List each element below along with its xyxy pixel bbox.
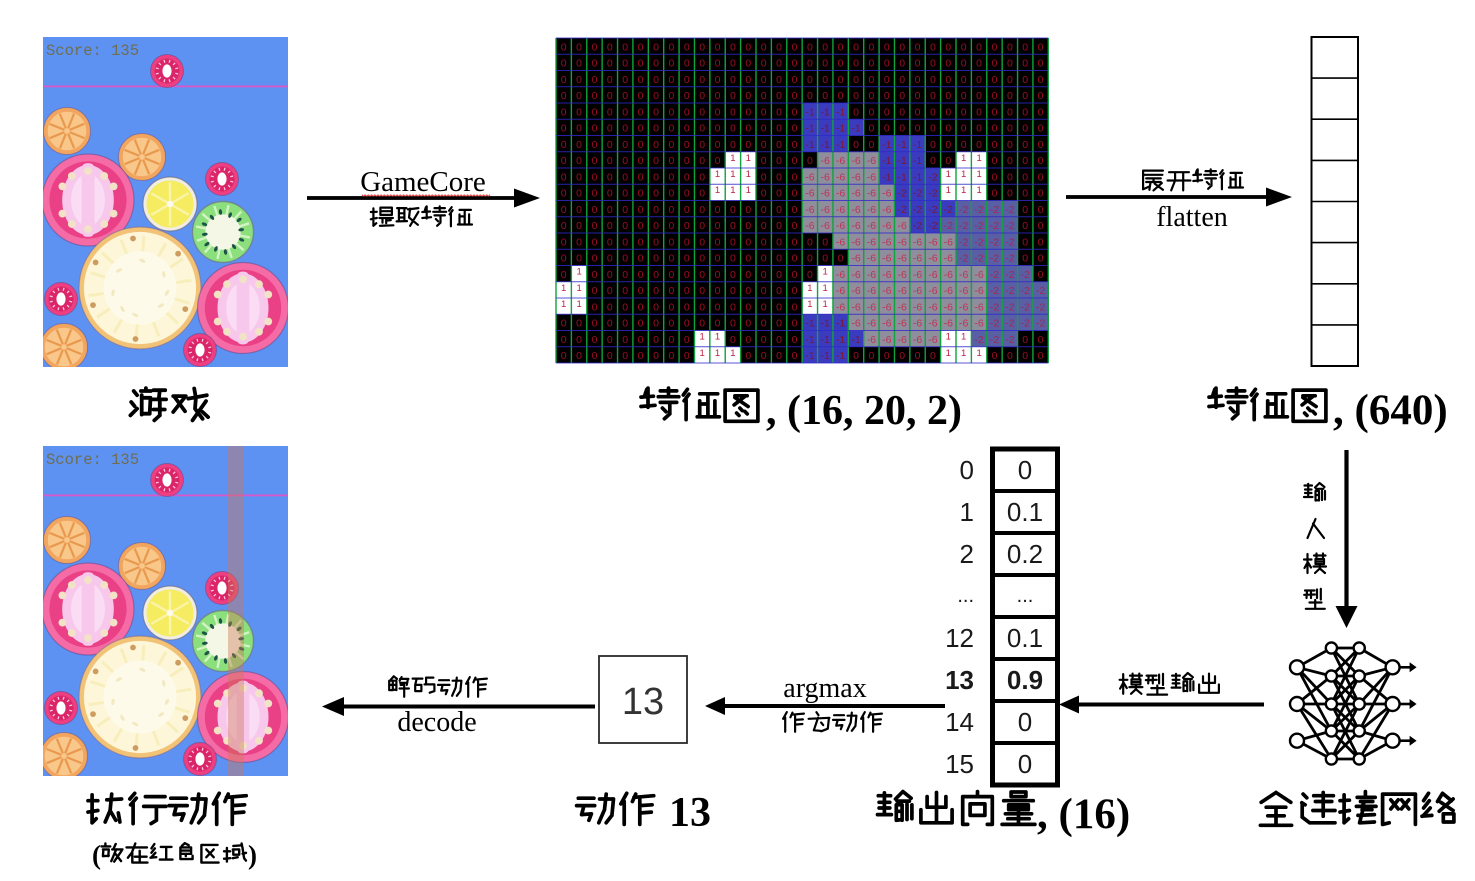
svg-text:0: 0: [653, 41, 659, 53]
svg-text:-6: -6: [882, 269, 891, 281]
svg-text:-6: -6: [898, 301, 907, 313]
svg-text:0: 0: [1022, 139, 1028, 151]
svg-text:0: 0: [653, 220, 659, 232]
svg-text:0: 0: [622, 41, 628, 53]
svg-text:0: 0: [638, 188, 644, 200]
svg-text:-1: -1: [821, 106, 830, 118]
svg-text:0: 0: [622, 350, 628, 362]
svg-text:0: 0: [1007, 350, 1013, 362]
svg-text:0: 0: [592, 253, 598, 265]
svg-text:-6: -6: [805, 188, 814, 200]
svg-text:0: 0: [792, 334, 798, 346]
svg-text:0: 0: [715, 204, 721, 216]
svg-text:0: 0: [976, 90, 982, 102]
svg-text:0: 0: [992, 106, 998, 118]
svg-text:1: 1: [823, 283, 828, 294]
svg-text:0: 0: [668, 253, 674, 265]
svg-text:0: 0: [622, 301, 628, 313]
svg-text:0: 0: [761, 139, 767, 151]
svg-text:0: 0: [653, 318, 659, 330]
svg-text:0: 0: [638, 220, 644, 232]
svg-text:flatten: flatten: [1156, 202, 1228, 233]
svg-text:0: 0: [715, 74, 721, 86]
svg-text:0: 0: [622, 106, 628, 118]
svg-text:0: 0: [776, 41, 782, 53]
svg-text:-6: -6: [867, 334, 876, 346]
svg-text:0: 0: [761, 318, 767, 330]
svg-text:-2: -2: [974, 236, 983, 248]
svg-text:-6: -6: [974, 269, 983, 281]
svg-text:-6: -6: [928, 301, 937, 313]
svg-text:0: 0: [761, 220, 767, 232]
svg-text:2: 2: [960, 539, 974, 569]
svg-text:-1: -1: [882, 139, 891, 151]
svg-text:0: 0: [668, 188, 674, 200]
svg-text:-2: -2: [1005, 204, 1014, 216]
svg-text:0: 0: [607, 318, 613, 330]
svg-text:0: 0: [745, 90, 751, 102]
svg-text:0: 0: [699, 106, 705, 118]
svg-text:0: 0: [730, 123, 736, 135]
svg-text:0: 0: [592, 334, 598, 346]
svg-text:-6: -6: [882, 301, 891, 313]
svg-text:0: 0: [1038, 334, 1044, 346]
svg-text:-2: -2: [959, 253, 968, 265]
svg-text:-6: -6: [821, 171, 830, 183]
svg-text:0: 0: [684, 90, 690, 102]
svg-text:0: 0: [561, 269, 567, 281]
svg-text:1: 1: [576, 267, 581, 278]
svg-text:-6: -6: [867, 253, 876, 265]
svg-text:1: 1: [561, 299, 566, 310]
svg-text:0: 0: [668, 90, 674, 102]
svg-text:0: 0: [576, 106, 582, 118]
svg-text:0: 0: [592, 285, 598, 297]
svg-text:0: 0: [715, 139, 721, 151]
svg-text:-2: -2: [1005, 318, 1014, 330]
svg-text:0: 0: [745, 74, 751, 86]
svg-text:-6: -6: [944, 301, 953, 313]
svg-text:0: 0: [576, 236, 582, 248]
svg-text:0: 0: [715, 41, 721, 53]
svg-text:0: 0: [945, 41, 951, 53]
svg-text:0: 0: [945, 123, 951, 135]
svg-text:0: 0: [915, 41, 921, 53]
svg-text:0: 0: [638, 318, 644, 330]
svg-text:-6: -6: [851, 285, 860, 297]
svg-text:-2: -2: [1021, 301, 1030, 313]
svg-text:0: 0: [807, 74, 813, 86]
svg-text:0: 0: [1038, 106, 1044, 118]
svg-text:-1: -1: [836, 334, 845, 346]
svg-text:0: 0: [638, 204, 644, 216]
svg-text:0: 0: [668, 139, 674, 151]
svg-text:0: 0: [607, 334, 613, 346]
svg-text:0: 0: [576, 74, 582, 86]
svg-text:0: 0: [668, 123, 674, 135]
svg-text:0: 0: [1007, 139, 1013, 151]
svg-text:0: 0: [622, 318, 628, 330]
svg-text:0: 0: [638, 90, 644, 102]
svg-text:0: 0: [1038, 41, 1044, 53]
svg-text:0: 0: [961, 106, 967, 118]
svg-text:0: 0: [976, 74, 982, 86]
svg-text:0: 0: [1007, 188, 1013, 200]
svg-text:0: 0: [699, 220, 705, 232]
svg-text:-6: -6: [882, 220, 891, 232]
svg-text:-1: -1: [821, 318, 830, 330]
svg-text:0: 0: [930, 58, 936, 70]
svg-text:0: 0: [745, 106, 751, 118]
svg-text:-1: -1: [898, 155, 907, 167]
svg-text:0: 0: [592, 350, 598, 362]
svg-text:0: 0: [730, 204, 736, 216]
svg-text:0: 0: [745, 123, 751, 135]
svg-text:0: 0: [776, 188, 782, 200]
svg-text:0: 0: [792, 171, 798, 183]
svg-text:0: 0: [592, 74, 598, 86]
svg-text:0: 0: [792, 155, 798, 167]
svg-text:0: 0: [607, 139, 613, 151]
svg-text:0: 0: [576, 58, 582, 70]
svg-text:0: 0: [776, 269, 782, 281]
svg-text:0: 0: [853, 350, 859, 362]
svg-text:0: 0: [607, 155, 613, 167]
svg-text:0: 0: [838, 58, 844, 70]
svg-text:...: ...: [1017, 585, 1034, 607]
svg-text:1: 1: [715, 185, 720, 196]
svg-text:-2: -2: [913, 188, 922, 200]
svg-text:12: 12: [945, 623, 974, 653]
svg-text:0: 0: [976, 58, 982, 70]
svg-text:-6: -6: [959, 269, 968, 281]
svg-text:0: 0: [699, 74, 705, 86]
svg-text:0: 0: [607, 269, 613, 281]
svg-text:0: 0: [792, 253, 798, 265]
svg-text:0: 0: [684, 253, 690, 265]
svg-text:0: 0: [561, 236, 567, 248]
svg-text:0: 0: [1022, 334, 1028, 346]
svg-text:0: 0: [761, 155, 767, 167]
svg-text:Score: 135: Score: 135: [46, 42, 139, 60]
svg-text:0: 0: [607, 220, 613, 232]
svg-text:0: 0: [576, 90, 582, 102]
svg-text:0: 0: [684, 155, 690, 167]
svg-text:0: 0: [1022, 188, 1028, 200]
svg-text:0: 0: [761, 253, 767, 265]
svg-text:0: 0: [868, 139, 874, 151]
svg-text:0: 0: [730, 41, 736, 53]
svg-text:): ): [248, 840, 257, 870]
svg-text:0: 0: [792, 318, 798, 330]
svg-text:15: 15: [945, 749, 974, 779]
svg-text:-2: -2: [1005, 220, 1014, 232]
svg-text:0: 0: [592, 318, 598, 330]
svg-text:0: 0: [792, 106, 798, 118]
svg-text:0: 0: [715, 90, 721, 102]
svg-text:-6: -6: [898, 285, 907, 297]
svg-text:-2: -2: [1036, 285, 1045, 297]
svg-text:0: 0: [1007, 155, 1013, 167]
svg-text:0: 0: [776, 350, 782, 362]
svg-text:-6: -6: [836, 269, 845, 281]
svg-text:-6: -6: [913, 285, 922, 297]
svg-text:0: 0: [761, 74, 767, 86]
svg-text:1: 1: [561, 283, 566, 294]
svg-text:-6: -6: [867, 220, 876, 232]
svg-text:-2: -2: [990, 220, 999, 232]
svg-text:1: 1: [961, 332, 966, 343]
svg-text:0: 0: [715, 123, 721, 135]
svg-text:0: 0: [807, 58, 813, 70]
svg-text:0: 0: [715, 253, 721, 265]
svg-text:1: 1: [976, 348, 981, 359]
svg-text:-6: -6: [974, 285, 983, 297]
svg-text:0: 0: [561, 139, 567, 151]
svg-text:-6: -6: [836, 171, 845, 183]
svg-text:0: 0: [668, 301, 674, 313]
svg-text:0: 0: [822, 41, 828, 53]
svg-text:0: 0: [1018, 707, 1032, 737]
svg-text:-2: -2: [990, 301, 999, 313]
svg-text:0: 0: [945, 139, 951, 151]
svg-text:0: 0: [792, 236, 798, 248]
svg-text:0: 0: [868, 106, 874, 118]
svg-text:0: 0: [576, 123, 582, 135]
svg-text:-2: -2: [1021, 269, 1030, 281]
svg-text:0: 0: [653, 253, 659, 265]
svg-text:0: 0: [976, 41, 982, 53]
svg-text:0: 0: [884, 58, 890, 70]
svg-text:0: 0: [653, 301, 659, 313]
svg-text:0: 0: [592, 90, 598, 102]
svg-text:0: 0: [884, 41, 890, 53]
svg-text:-6: -6: [944, 285, 953, 297]
svg-text:1: 1: [730, 153, 735, 164]
svg-text:1: 1: [946, 169, 951, 180]
svg-text:-6: -6: [944, 269, 953, 281]
svg-text:-2: -2: [974, 204, 983, 216]
svg-text:-6: -6: [898, 253, 907, 265]
svg-text:0: 0: [945, 90, 951, 102]
svg-text:0: 0: [668, 318, 674, 330]
svg-text:0: 0: [684, 58, 690, 70]
svg-text:0: 0: [668, 334, 674, 346]
svg-text:1: 1: [946, 185, 951, 196]
svg-text:1: 1: [746, 169, 751, 180]
svg-text:0: 0: [684, 188, 690, 200]
svg-text:0: 0: [915, 106, 921, 118]
svg-text:0: 0: [853, 139, 859, 151]
svg-text:0: 0: [899, 350, 905, 362]
svg-text:0: 0: [684, 171, 690, 183]
svg-text:0: 0: [607, 253, 613, 265]
svg-text:0: 0: [699, 58, 705, 70]
svg-text:0: 0: [607, 74, 613, 86]
svg-text:-6: -6: [851, 236, 860, 248]
svg-text:1: 1: [946, 332, 951, 343]
svg-text:-2: -2: [1005, 236, 1014, 248]
svg-text:1: 1: [823, 299, 828, 310]
svg-text:0: 0: [699, 171, 705, 183]
svg-text:0: 0: [592, 171, 598, 183]
svg-text:-2: -2: [944, 220, 953, 232]
svg-text:0: 0: [992, 41, 998, 53]
svg-text:1: 1: [700, 348, 705, 359]
svg-text:-6: -6: [805, 220, 814, 232]
svg-text:-6: -6: [898, 220, 907, 232]
svg-text:-6: -6: [851, 301, 860, 313]
svg-text:0: 0: [715, 220, 721, 232]
svg-text:-6: -6: [836, 155, 845, 167]
svg-text:, (16, 20, 2): , (16, 20, 2): [766, 388, 962, 434]
svg-text:-2: -2: [990, 285, 999, 297]
svg-text:0: 0: [792, 123, 798, 135]
svg-text:0: 0: [822, 90, 828, 102]
svg-text:0: 0: [745, 253, 751, 265]
svg-text:1: 1: [946, 348, 951, 359]
svg-text:0: 0: [761, 58, 767, 70]
svg-text:0: 0: [699, 90, 705, 102]
svg-text:1: 1: [961, 153, 966, 164]
svg-text:0: 0: [776, 318, 782, 330]
svg-text:-6: -6: [913, 269, 922, 281]
svg-text:0: 0: [807, 253, 813, 265]
svg-text:0: 0: [853, 74, 859, 86]
svg-text:0: 0: [684, 41, 690, 53]
svg-text:0: 0: [899, 90, 905, 102]
svg-text:0: 0: [899, 41, 905, 53]
svg-text:Score: 135: Score: 135: [46, 451, 139, 469]
svg-text:0: 0: [776, 253, 782, 265]
svg-text:0: 0: [622, 285, 628, 297]
svg-text:0: 0: [761, 236, 767, 248]
svg-text:0: 0: [576, 318, 582, 330]
svg-text:0: 0: [699, 301, 705, 313]
svg-text:0: 0: [684, 123, 690, 135]
svg-text:0: 0: [684, 204, 690, 216]
svg-text:0: 0: [576, 139, 582, 151]
svg-text:0: 0: [653, 236, 659, 248]
svg-text:-6: -6: [821, 220, 830, 232]
svg-text:0: 0: [792, 301, 798, 313]
svg-text:0: 0: [961, 90, 967, 102]
svg-text:0: 0: [1022, 106, 1028, 118]
svg-text:0: 0: [976, 106, 982, 118]
svg-text:1: 1: [746, 185, 751, 196]
svg-text:-2: -2: [1005, 334, 1014, 346]
svg-text:0: 0: [607, 301, 613, 313]
svg-text:0: 0: [607, 90, 613, 102]
svg-text:0: 0: [622, 220, 628, 232]
svg-text:0: 0: [899, 58, 905, 70]
svg-text:0: 0: [761, 90, 767, 102]
svg-text:0: 0: [592, 58, 598, 70]
svg-text:0: 0: [622, 139, 628, 151]
svg-text:0: 0: [776, 334, 782, 346]
svg-text:-6: -6: [851, 253, 860, 265]
svg-text:1: 1: [715, 332, 720, 343]
svg-text:1: 1: [715, 169, 720, 180]
svg-text:0: 0: [668, 58, 674, 70]
svg-text:, (16): , (16): [1037, 791, 1130, 838]
svg-text:0: 0: [607, 123, 613, 135]
svg-text:0: 0: [761, 350, 767, 362]
svg-text:0: 0: [715, 318, 721, 330]
svg-text:0: 0: [576, 220, 582, 232]
svg-text:0: 0: [730, 253, 736, 265]
svg-text:0: 0: [684, 318, 690, 330]
svg-text:0: 0: [1022, 350, 1028, 362]
svg-text:0: 0: [930, 90, 936, 102]
svg-text:0: 0: [868, 74, 874, 86]
svg-text:-6: -6: [805, 171, 814, 183]
svg-text:0: 0: [1038, 350, 1044, 362]
svg-text:1: 1: [976, 185, 981, 196]
svg-text:0: 0: [1038, 220, 1044, 232]
svg-text:0: 0: [638, 139, 644, 151]
svg-text:0: 0: [730, 220, 736, 232]
svg-text:0: 0: [1007, 123, 1013, 135]
svg-text:0: 0: [638, 123, 644, 135]
svg-text:0: 0: [684, 334, 690, 346]
svg-text:0: 0: [638, 285, 644, 297]
svg-text:0: 0: [807, 155, 813, 167]
svg-text:-6: -6: [851, 204, 860, 216]
svg-text:-6: -6: [851, 171, 860, 183]
svg-text:-6: -6: [928, 253, 937, 265]
svg-text:0: 0: [653, 171, 659, 183]
svg-text:0: 0: [1038, 253, 1044, 265]
svg-text:0: 0: [792, 139, 798, 151]
svg-text:0: 0: [899, 123, 905, 135]
svg-text:1: 1: [715, 348, 720, 359]
svg-text:-2: -2: [1021, 318, 1030, 330]
svg-text:-6: -6: [805, 204, 814, 216]
svg-text:0: 0: [561, 334, 567, 346]
svg-text:0: 0: [653, 350, 659, 362]
svg-text:...: ...: [957, 585, 974, 607]
svg-text:0: 0: [684, 139, 690, 151]
svg-text:-6: -6: [867, 301, 876, 313]
svg-text:argmax: argmax: [783, 673, 866, 704]
svg-text:0: 0: [684, 269, 690, 281]
svg-text:0: 0: [1022, 90, 1028, 102]
svg-text:0: 0: [638, 106, 644, 118]
svg-text:-6: -6: [928, 318, 937, 330]
svg-text:0: 0: [699, 204, 705, 216]
svg-text:-6: -6: [913, 253, 922, 265]
svg-text:-2: -2: [1005, 253, 1014, 265]
svg-text:0: 0: [638, 269, 644, 281]
svg-text:0: 0: [730, 90, 736, 102]
svg-text:0: 0: [792, 269, 798, 281]
svg-text:0: 0: [868, 41, 874, 53]
svg-text:0: 0: [992, 188, 998, 200]
svg-text:-6: -6: [836, 188, 845, 200]
svg-text:0: 0: [622, 74, 628, 86]
svg-text:1: 1: [823, 267, 828, 278]
svg-text:-2: -2: [1005, 269, 1014, 281]
svg-text:1: 1: [976, 169, 981, 180]
svg-text:0: 0: [561, 253, 567, 265]
svg-text:0: 0: [592, 301, 598, 313]
svg-text:1: 1: [700, 332, 705, 343]
svg-text:0: 0: [561, 350, 567, 362]
svg-text:0: 0: [668, 74, 674, 86]
svg-text:0: 0: [653, 285, 659, 297]
svg-text:-6: -6: [944, 318, 953, 330]
